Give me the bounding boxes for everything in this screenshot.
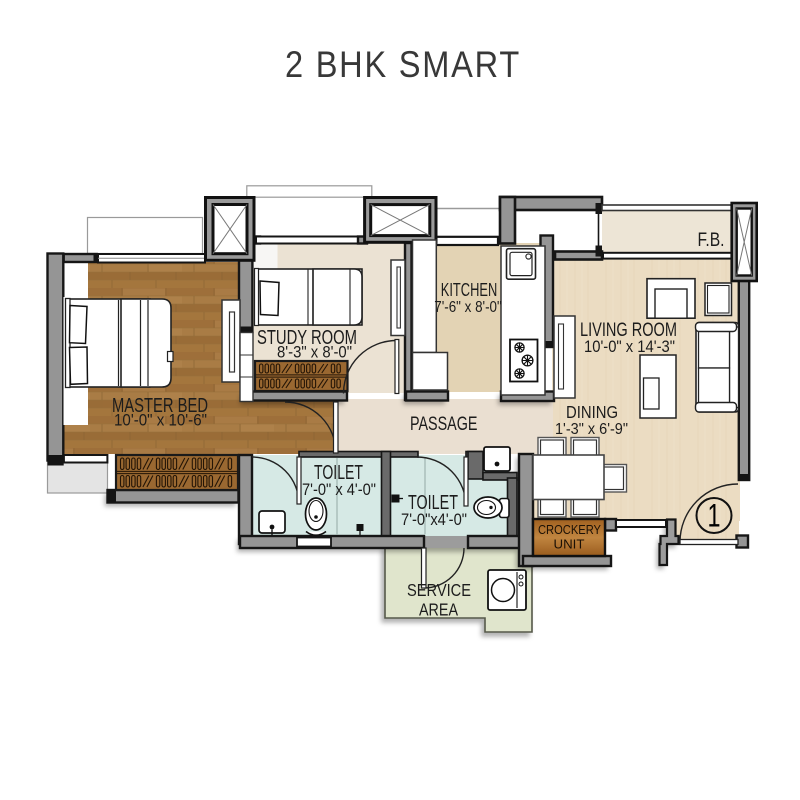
svg-text:F.B.: F.B. [698, 230, 725, 251]
svg-text:CROCKERY: CROCKERY [538, 522, 601, 537]
svg-text:PASSAGE: PASSAGE [410, 414, 478, 435]
svg-text:DINING: DINING [566, 402, 618, 422]
svg-text:8'-3" x 8'-0": 8'-3" x 8'-0" [277, 344, 352, 362]
svg-text:7'-6" x 8'-0": 7'-6" x 8'-0" [434, 299, 502, 316]
svg-text:SERVICE: SERVICE [407, 580, 471, 600]
svg-text:1'-3" x 6'-9": 1'-3" x 6'-9" [555, 421, 628, 438]
svg-text:10'-0" x 14'-3": 10'-0" x 14'-3" [584, 338, 675, 356]
svg-text:2 BHK SMART: 2 BHK SMART [285, 44, 521, 85]
svg-text:1: 1 [708, 498, 721, 534]
svg-text:7'-0"x4'-0": 7'-0"x4'-0" [401, 511, 467, 529]
svg-text:KITCHEN: KITCHEN [441, 280, 498, 300]
svg-text:7'-0" x 4'-0": 7'-0" x 4'-0" [302, 481, 376, 499]
svg-text:AREA: AREA [419, 600, 458, 620]
svg-text:UNIT: UNIT [554, 537, 585, 552]
svg-text:10'-0" x 10'-6": 10'-0" x 10'-6" [114, 412, 207, 430]
